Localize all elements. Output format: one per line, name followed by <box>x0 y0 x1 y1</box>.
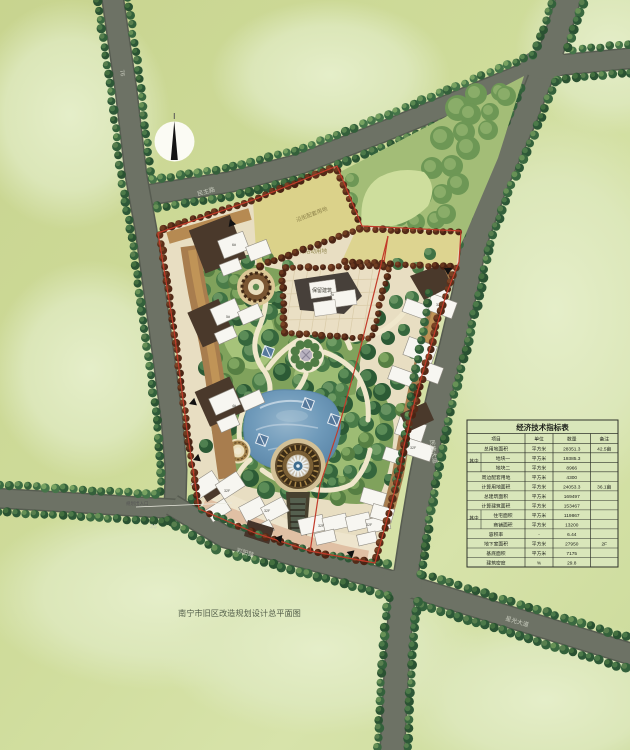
svg-text:27950: 27950 <box>565 542 579 548</box>
svg-text:建筑密度: 建筑密度 <box>486 560 505 567</box>
svg-text:平方米: 平方米 <box>532 474 547 481</box>
svg-text:7175: 7175 <box>566 551 577 557</box>
svg-text:平方米: 平方米 <box>532 445 547 452</box>
svg-text:32F: 32F <box>264 509 271 513</box>
svg-text:南宁市旧区改造规划设计总平面图: 南宁市旧区改造规划设计总平面图 <box>178 608 301 618</box>
svg-text:总用地面积: 总用地面积 <box>484 445 508 452</box>
svg-text:地下室面积: 地下室面积 <box>484 541 508 548</box>
svg-text:24053.3: 24053.3 <box>563 484 581 490</box>
svg-text:32F: 32F <box>224 489 231 493</box>
svg-text:平方米: 平方米 <box>532 483 547 490</box>
svg-text:项目: 项目 <box>491 437 501 443</box>
svg-text:6#: 6# <box>232 243 236 247</box>
svg-text:2F: 2F <box>601 542 607 548</box>
svg-text:6.44: 6.44 <box>567 532 577 538</box>
svg-text:5#: 5# <box>226 315 230 319</box>
svg-text:保留建筑: 保留建筑 <box>312 287 332 294</box>
svg-text:%: % <box>537 561 542 567</box>
svg-text:单位: 单位 <box>534 436 544 443</box>
svg-text:25: 25 <box>150 524 158 530</box>
svg-text:备注: 备注 <box>599 436 609 443</box>
svg-text:32F: 32F <box>318 524 325 528</box>
svg-text:地块二: 地块二 <box>496 464 511 471</box>
svg-text:8966: 8966 <box>566 465 577 471</box>
svg-text:周边配套用地: 周边配套用地 <box>482 474 511 481</box>
svg-text:住宅面积: 住宅面积 <box>493 512 512 519</box>
svg-text:其中: 其中 <box>469 457 479 464</box>
svg-text:7#: 7# <box>330 293 334 297</box>
svg-text:规划出入口: 规划出入口 <box>126 500 149 507</box>
svg-text:地块一: 地块一 <box>496 455 511 462</box>
svg-text:32F: 32F <box>366 523 373 527</box>
svg-text:平方米: 平方米 <box>532 550 547 557</box>
svg-text:容积率: 容积率 <box>489 531 504 538</box>
svg-text:153467: 153467 <box>564 503 580 509</box>
svg-text:平方米: 平方米 <box>532 522 547 529</box>
svg-text:平方米: 平方米 <box>532 493 547 500</box>
svg-text:平方米: 平方米 <box>532 464 547 471</box>
svg-text:36.1亩: 36.1亩 <box>597 483 611 490</box>
svg-text:19385.3: 19385.3 <box>563 456 581 462</box>
svg-text:169497: 169497 <box>564 494 580 500</box>
svg-text:商铺面积: 商铺面积 <box>493 522 512 529</box>
svg-text:平方米: 平方米 <box>532 455 547 462</box>
svg-text:基底面积: 基底面积 <box>486 550 505 557</box>
svg-text:4300: 4300 <box>566 475 577 481</box>
svg-text:计算用地面积: 计算用地面积 <box>482 483 511 490</box>
svg-text:计算建筑面积: 计算建筑面积 <box>482 502 511 509</box>
svg-text:4#: 4# <box>232 404 236 408</box>
svg-text:42.5亩: 42.5亩 <box>597 445 611 452</box>
svg-text:数量: 数量 <box>567 436 577 443</box>
svg-text:32F: 32F <box>410 446 417 450</box>
svg-text:29.8: 29.8 <box>567 561 577 567</box>
svg-text:经济技术指标表: 经济技术指标表 <box>516 422 569 432</box>
svg-text:28351.3: 28351.3 <box>563 446 581 452</box>
svg-text:平方米: 平方米 <box>532 541 547 548</box>
svg-text:平方米: 平方米 <box>532 502 547 509</box>
svg-text:其中: 其中 <box>469 514 479 521</box>
svg-text:13200: 13200 <box>565 523 579 529</box>
svg-text:总建筑面积: 总建筑面积 <box>484 493 508 500</box>
svg-text:平方米: 平方米 <box>532 512 547 519</box>
svg-text:119867: 119867 <box>564 513 580 519</box>
